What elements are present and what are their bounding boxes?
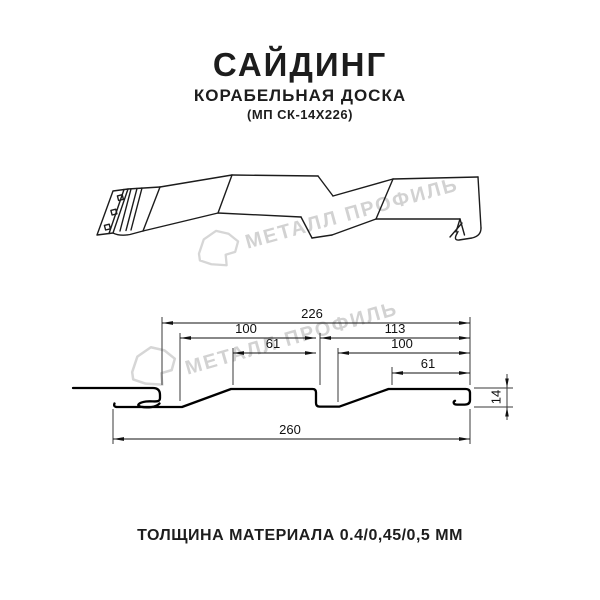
metall-profil-logo-icon <box>128 344 180 390</box>
dim-label-right-crest: 61 <box>421 356 435 371</box>
watermark-text: МЕТАЛЛ ПРОФИЛЬ <box>243 174 461 255</box>
page-subtitle: КОРАБЕЛЬНАЯ ДОСКА <box>0 86 600 106</box>
dim-label-left-crest: 61 <box>266 336 280 351</box>
material-thickness-note: ТОЛЩИНА МАТЕРИАЛА 0.4/0,45/0,5 ММ <box>0 527 600 545</box>
watermark-text: МЕТАЛЛ ПРОФИЛЬ <box>183 298 401 381</box>
dim-label-overall-top: 226 <box>301 306 323 321</box>
dim-label-overall-bottom: 260 <box>279 422 301 437</box>
page-title: САЙДИНГ <box>0 46 600 84</box>
dim-label-profile-height: 14 <box>489 390 504 404</box>
dim-label-right-inner: 100 <box>391 336 413 351</box>
dim-label-left-board: 100 <box>235 321 257 336</box>
model-code: (МП СК-14Х226) <box>0 107 600 122</box>
dim-label-right-board: 113 <box>385 321 406 336</box>
product-diagram-page: САЙДИНГ КОРАБЕЛЬНАЯ ДОСКА (МП СК-14Х226)… <box>0 0 600 600</box>
metall-profil-logo-icon <box>195 228 243 270</box>
